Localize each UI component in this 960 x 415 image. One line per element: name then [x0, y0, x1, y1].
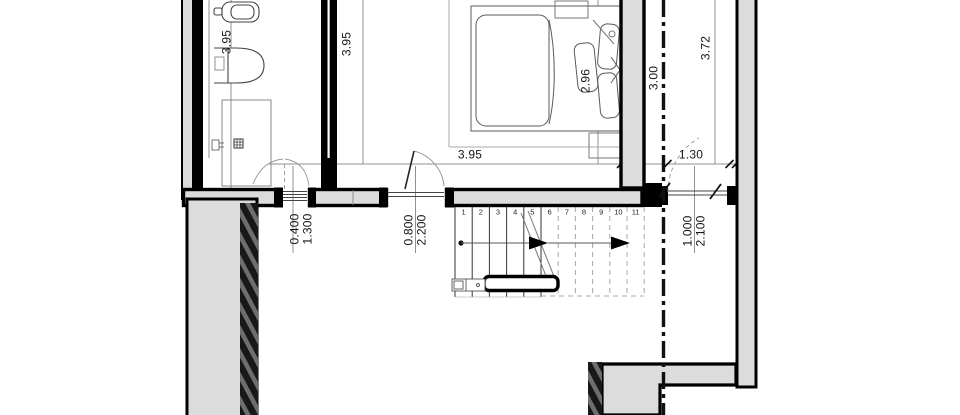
wall-cap — [727, 186, 737, 205]
nightstand — [589, 133, 620, 158]
wall-lower-right-step — [602, 364, 736, 415]
wall-hatch-existing — [240, 203, 258, 415]
wall-bottom-middle — [310, 190, 387, 206]
stair-walking-line — [458, 237, 630, 250]
dim-right-room-depth-label: 3.72 — [700, 36, 713, 60]
dim-bed-width-label: 2.96 — [580, 69, 593, 93]
window-left-glazing — [283, 192, 307, 201]
floor-plan: 3.95 3.95 2.96 3.00 3.72 3.95 1.30 0.400… — [0, 0, 960, 415]
wall-right-exterior — [737, 0, 756, 387]
stair-tread-number: 7 — [565, 207, 569, 216]
wall-cap — [308, 188, 316, 208]
dim-door-right-height: 2.100 — [694, 215, 707, 246]
door-bedroom-swing — [414, 151, 444, 186]
dim-window-left-label: 0.400 1.300 — [288, 213, 313, 244]
handrail — [484, 277, 558, 291]
stair-tread-number: 6 — [548, 207, 552, 216]
walls — [182, 0, 756, 415]
wall-bed-head — [621, 0, 644, 188]
dim-window-left-height: 1.300 — [301, 213, 314, 244]
stair-tread-number: 5 — [530, 207, 534, 216]
dim-window-left-width: 0.400 — [288, 213, 301, 244]
stair-tread-number: 1 — [462, 207, 466, 216]
dim-landing-width-label: 3.00 — [648, 66, 661, 90]
wall-hatch-existing — [588, 362, 602, 415]
stair-tread-number: 9 — [599, 207, 603, 216]
wall-cap — [379, 188, 387, 208]
dim-bedroom-depth-label: 3.95 — [341, 32, 354, 56]
dim-door-bedroom-label: 0.800 2.200 — [402, 214, 427, 245]
wall-bottom-stairwell — [447, 190, 643, 206]
stair-tread-number: 8 — [582, 207, 586, 216]
dim-door-bedroom-height: 2.200 — [415, 214, 428, 245]
dim-door-right-label: 1.000 2.100 — [681, 215, 706, 246]
stair-tread-number: 2 — [479, 207, 483, 216]
stair-tread-number: 3 — [496, 207, 500, 216]
floor-drain-icon — [234, 139, 243, 148]
pillow — [597, 23, 620, 69]
dim-door-right-width: 1.000 — [681, 215, 694, 246]
wall-junction — [643, 183, 662, 207]
stair-tread-number: 11 — [632, 207, 640, 216]
dim-right-door-width-label: 1.30 — [679, 149, 703, 162]
wall-left-inner-face — [192, 0, 203, 199]
stair-tread-number: 4 — [513, 207, 517, 216]
stair-tread-number: 10 — [614, 207, 622, 216]
shower-tray — [222, 100, 271, 186]
wall-cap — [445, 188, 454, 208]
toilet-fixture — [214, 2, 259, 22]
dim-door-bedroom-width: 0.800 — [402, 214, 415, 245]
door-right-leaf — [710, 184, 721, 199]
wall-cap — [274, 188, 283, 208]
door-bedroom-leaf — [405, 151, 414, 189]
dim-bathroom-depth-label: 3.95 — [221, 30, 234, 54]
dim-bedroom-width-label: 3.95 — [458, 149, 482, 162]
landing-fixture — [452, 279, 485, 291]
door-right-threshold — [668, 191, 727, 195]
bed-blanket — [476, 15, 549, 126]
wall-divider-core — [328, 0, 330, 158]
pillow — [597, 72, 620, 118]
